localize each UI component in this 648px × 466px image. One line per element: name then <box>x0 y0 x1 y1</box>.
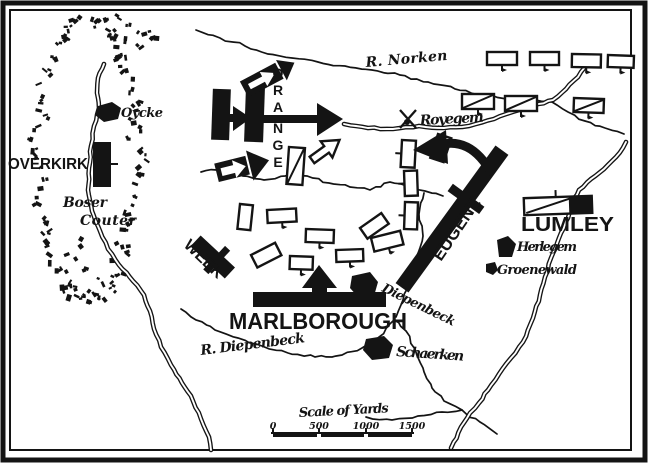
label-oycke: Oycke <box>121 106 163 121</box>
battle-map: OVERKIRK O R A N G E WEEK MARLBOROUGH EU… <box>0 0 648 466</box>
french-infantry-unit <box>305 229 334 250</box>
french-infantry-unit <box>398 202 418 230</box>
french-cavalry-unit <box>573 98 604 120</box>
label-overkirk: OVERKIRK <box>8 156 89 173</box>
orange-letter: O <box>273 65 284 81</box>
label-lumley: LUMLEY <box>521 214 615 236</box>
label-couter: Couter <box>80 213 138 229</box>
overkirk-unit <box>93 142 118 187</box>
label-marlborough: MARLBOROUGH <box>229 308 407 334</box>
label-royegem: Royegem <box>418 110 484 129</box>
french-infantry-unit <box>371 231 405 259</box>
main-arrow-head <box>317 103 343 136</box>
french-infantry-unit <box>237 204 253 230</box>
orange-letter: G <box>273 137 284 153</box>
french-infantry-unit <box>336 249 364 269</box>
main-arrow-shaft <box>255 115 317 123</box>
french-infantry-unit <box>395 140 416 168</box>
battle-map-page: OVERKIRK O R A N G E WEEK MARLBOROUGH EU… <box>0 0 648 466</box>
outline-advance-arrow <box>306 132 345 168</box>
label-river-norken: R. Norken <box>364 48 448 71</box>
orange-letter: A <box>273 99 283 115</box>
french-infantry-unit <box>289 256 313 277</box>
orange-upper-unit <box>239 53 300 100</box>
orange-letter: N <box>273 120 283 136</box>
french-infantry-unit <box>572 54 601 75</box>
french-infantry-unit <box>398 171 418 197</box>
lumley-unit <box>523 189 592 215</box>
village-herlegem <box>497 236 516 257</box>
orange-lower-unit <box>213 146 273 189</box>
french-infantry-unit <box>267 208 297 229</box>
label-herlegem: Herlegem <box>516 240 577 255</box>
label-boser: Boser <box>62 195 109 211</box>
label-schaerken: Schaerken <box>396 344 465 365</box>
label-river-diepenbeck: R. Diepenbeck <box>199 330 306 359</box>
french-infantry-unit <box>487 52 517 72</box>
label-groenewald: Groenewald <box>497 263 577 278</box>
french-cavalry-unit <box>286 147 305 185</box>
orange-letter: R <box>273 82 283 98</box>
french-infantry-unit <box>530 52 559 72</box>
village-schaerken <box>363 336 393 360</box>
scale-title: Scale of Yards <box>298 401 389 421</box>
french-infantry-unit <box>251 243 281 268</box>
french-infantry-unit <box>607 55 634 75</box>
orange-letter: E <box>273 154 282 170</box>
